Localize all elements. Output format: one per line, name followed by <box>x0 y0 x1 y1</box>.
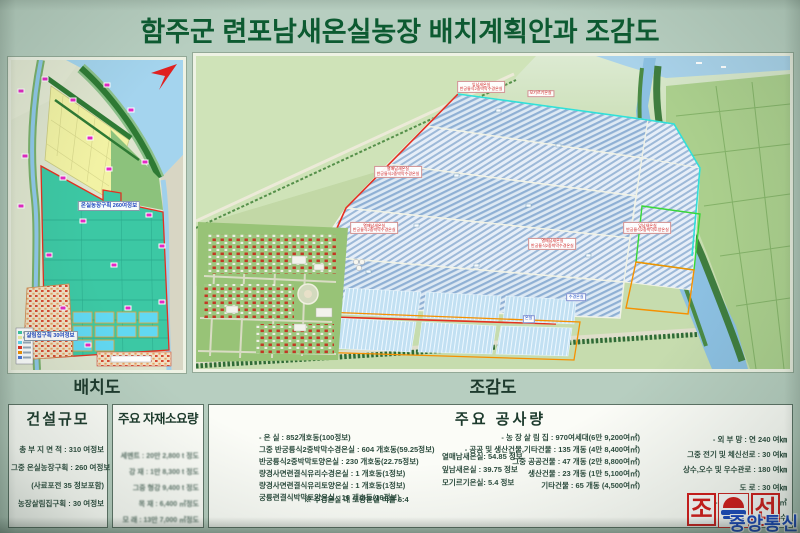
works-buildings-column: - 농 장 살 림 집 : 970여세대(6만 9,200여㎡)- 공공 및 생… <box>465 432 640 492</box>
works-ratio-note: ※ 수경온실 대 토양온실 비률 6:4 <box>304 494 409 505</box>
materials-heading: 주요 자재소요량 <box>113 408 203 427</box>
works-row: 그중 반궁륭식2중박막수경온실 : 604 개호동(59.25정보) <box>259 444 434 456</box>
works-row: 량경사면련결식유리토양온실 : 1 개호동(1정보) <box>259 480 434 492</box>
construction-scale-row: 그중 온실농장구획 : 260 여정보 <box>11 459 104 477</box>
construction-scale-heading: 건설규모 <box>9 408 107 429</box>
materials-row: 강 재 : 1만 8,300 t 정도 <box>115 465 199 481</box>
aerial-view-panel: 열매남새온실반궁륭식2중박막수경온실 잎남새온실반궁륭식2중박막수경온실 열매남… <box>193 53 793 372</box>
logo-agency-text: 중앙통신 <box>729 510 799 533</box>
works-row: - 농 장 살 림 집 : 970여세대(6만 9,200여㎡) <box>465 432 640 444</box>
caption-aerial-view: 조감도 <box>193 373 793 398</box>
construction-scale-box: 건설규모 총 부 지 면 적 : 310 여정보그중 온실농장구획 : 260 … <box>8 404 108 528</box>
works-row: 그중 전기 및 체신선로 : 30 여㎞ <box>683 447 787 462</box>
materials-row: 세멘트 : 20만 2,800 t 정도 <box>115 449 199 465</box>
construction-scale-row: 총 부 지 면 적 : 310 여정보 <box>11 441 104 459</box>
materials-row: 목 재 : 6,400 ㎥정도 <box>115 497 199 513</box>
works-row: 반궁륭식2중박막토양온실 : 230 개호동(22.75정보) <box>259 456 434 468</box>
layout-map-art <box>11 60 183 370</box>
works-row: - 온 실 : 852개호동(100정보) <box>259 432 434 444</box>
materials-row: 모 래 : 13만 7,000 ㎥정도 <box>115 513 199 529</box>
construction-scale-row: (사료포전 35 정보포함) <box>11 477 104 495</box>
materials-row: 그중 형강 9,400 t 정도 <box>115 481 199 497</box>
sun-icon <box>723 497 744 508</box>
map-legend <box>16 328 33 364</box>
caption-layout-map: 배치도 <box>8 373 186 398</box>
layout-map-panel: 온실농장구획 260여정보 살림집구획 30여정보 <box>8 57 186 373</box>
works-row: 그중 공공건물 : 47 개동 (2만 8,800여㎡) <box>465 456 640 468</box>
poster-title: 함주군 련포남새온실농장 배치계획안과 조감도 <box>0 10 800 49</box>
poster: 함주군 련포남새온실농장 배치계획안과 조감도 <box>0 0 800 533</box>
works-row: - 공공 및 생산건물,기타건물 : 135 개동 (4만 8,400여㎡) <box>465 444 640 456</box>
works-row: 량경사면련결식유리수경온실 : 1 개호동(1정보) <box>259 468 434 480</box>
construction-scale-rows: 총 부 지 면 적 : 310 여정보그중 온실농장구획 : 260 여정보(사… <box>11 441 104 513</box>
materials-rows: 세멘트 : 20만 2,800 t 정도강 재 : 1만 8,300 t 정도그… <box>115 449 199 529</box>
works-row: - 외 부 망 : 연 240 여㎞ <box>683 432 787 447</box>
construction-scale-row: 농장살림집구획 : 30 여정보 <box>11 495 104 513</box>
aerial-view-art <box>196 56 790 369</box>
works-row: 생산건물 : 23 개동 (1만 5,100여㎡) <box>465 468 640 480</box>
works-row: 기타건물 : 65 개동 (4,500여㎡) <box>465 480 640 492</box>
works-row: 상수,오수 및 우수관로 : 180 여㎞ <box>683 462 787 477</box>
kcna-logo: 조 선 중앙통신 <box>687 493 795 533</box>
works-heading: 주요 공사량 <box>209 408 792 429</box>
logo-char-cho: 조 <box>687 493 716 526</box>
materials-box: 주요 자재소요량 세멘트 : 20만 2,800 t 정도강 재 : 1만 8,… <box>112 404 204 528</box>
